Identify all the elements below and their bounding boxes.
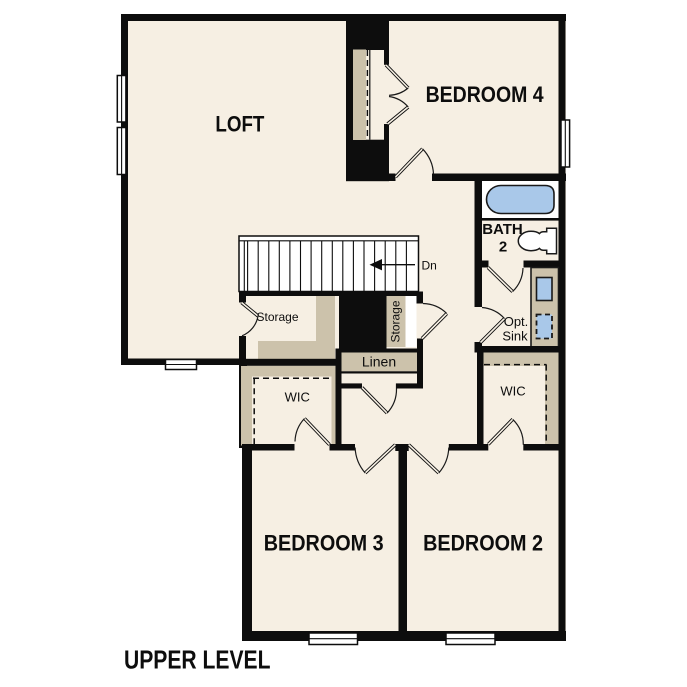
svg-text:WIC: WIC: [285, 390, 310, 405]
svg-text:BEDROOM 4: BEDROOM 4: [426, 82, 545, 107]
svg-text:Linen: Linen: [362, 354, 396, 370]
svg-text:Storage: Storage: [257, 310, 299, 324]
svg-text:2: 2: [499, 238, 507, 255]
svg-text:UPPER LEVEL: UPPER LEVEL: [124, 647, 271, 675]
svg-text:Opt.: Opt.: [504, 314, 529, 329]
svg-text:Storage: Storage: [389, 300, 403, 342]
svg-text:BEDROOM 2: BEDROOM 2: [423, 531, 543, 556]
svg-text:LOFT: LOFT: [215, 111, 264, 136]
svg-text:WIC: WIC: [500, 384, 525, 399]
svg-text:BATH: BATH: [482, 221, 523, 238]
svg-text:Dn: Dn: [422, 259, 437, 273]
svg-text:Sink: Sink: [502, 329, 528, 344]
svg-text:BEDROOM 3: BEDROOM 3: [264, 531, 384, 556]
